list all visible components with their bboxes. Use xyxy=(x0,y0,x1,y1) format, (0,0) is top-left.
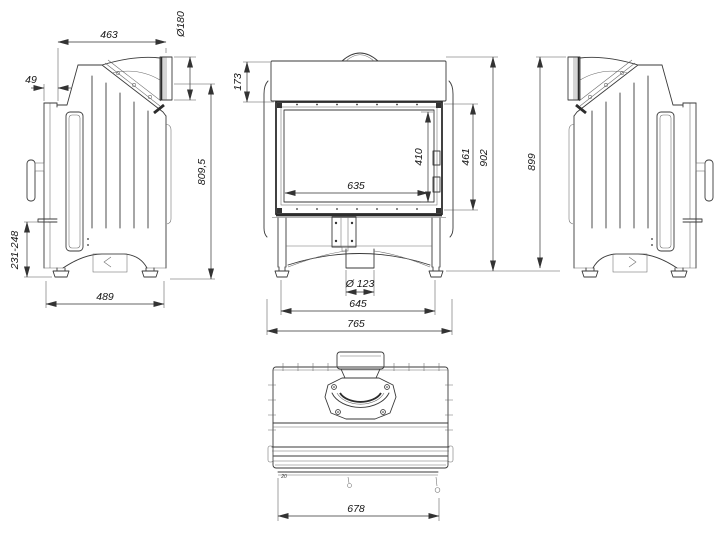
dim-total-height: 902 xyxy=(478,149,490,167)
dim-left-top-width: 463 xyxy=(100,29,118,41)
right-side-view-dimensions: 899 xyxy=(526,57,566,268)
drawing-canvas: 463 Ø180 49 231-248 809,5 489 xyxy=(0,0,722,534)
dim-feet-spacing: 645 xyxy=(349,298,367,310)
top-view-dimensions: 678 xyxy=(278,478,439,521)
dim-depth: 489 xyxy=(96,291,114,303)
dim-total-width: 765 xyxy=(347,318,365,330)
dim-top-note: 20 xyxy=(280,474,287,480)
side-view-body xyxy=(27,57,172,277)
dim-front-offset: 49 xyxy=(25,74,37,86)
dim-firebox-height: 461 xyxy=(460,148,472,166)
dim-glass-width: 635 xyxy=(347,180,365,192)
dim-glass-height: 410 xyxy=(413,148,425,166)
left-side-view-dimensions: 463 Ø180 49 231-248 809,5 489 xyxy=(9,11,215,308)
dim-base-height: 231-248 xyxy=(9,231,21,271)
dim-hood-height: 173 xyxy=(232,73,244,91)
right-side-view xyxy=(568,57,713,277)
dim-flue-axis-height: 809,5 xyxy=(196,159,208,185)
top-view: 20 xyxy=(268,352,453,492)
dim-flue-diameter: Ø180 xyxy=(175,11,187,38)
fireplace-technical-drawing: 463 Ø180 49 231-248 809,5 489 xyxy=(0,0,722,534)
dim-outlet-diameter: Ø 123 xyxy=(345,278,375,290)
dim-right-total-height: 899 xyxy=(526,153,538,171)
dim-top-width: 678 xyxy=(347,503,365,515)
